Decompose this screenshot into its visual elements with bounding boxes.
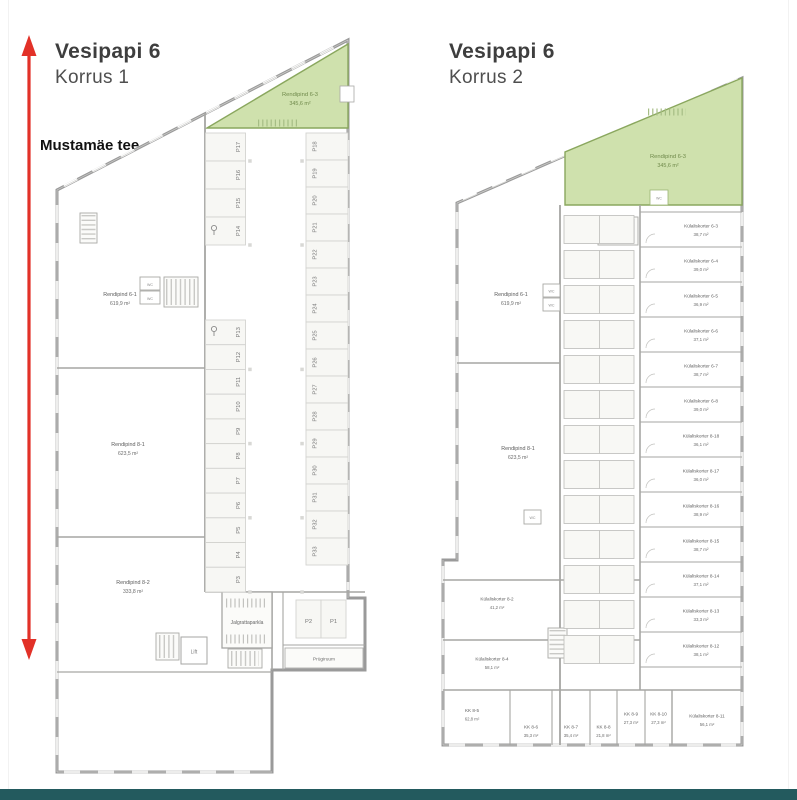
bathroom-pod (564, 566, 634, 594)
unit-size: 27,3 m² (624, 720, 639, 725)
unit-size: 58,1 m² (485, 665, 500, 670)
unit-size: 38,7 m² (694, 547, 709, 552)
parking-stall-label: P15 (236, 198, 242, 208)
structural-column (248, 159, 252, 163)
unit-name: Külaliskorter 6-3 (684, 224, 718, 229)
unit-name: Külaliskorter 8-2 (480, 597, 514, 602)
parking-stall-label: P10 (236, 401, 242, 411)
highlight-unit-size: 345,6 m² (657, 163, 678, 169)
area-size: 623,5 m² (508, 455, 528, 461)
parking-stall-label: P6 (236, 502, 242, 509)
unit-size: 36,0 m² (694, 477, 709, 482)
structural-column (300, 159, 304, 163)
unit-size: 39,0 m² (694, 407, 709, 412)
bathroom-pod (564, 356, 634, 384)
parking-stall-label: P32 (313, 519, 319, 529)
area-name: Rendipind 6-1 (494, 292, 528, 298)
arrow-down-head (22, 639, 37, 660)
unit-size: 38,9 m² (694, 512, 709, 517)
floor-plans-canvas: Rendipind 6-3 345,6 m² WC WC Jalgrattapa… (0, 0, 797, 789)
unit-name: Külaliskorter 8-4 (475, 657, 509, 662)
parking-stall-label: P28 (313, 411, 319, 421)
unit-size: 27,3 m² (651, 720, 666, 725)
unit-name: Külaliskorter 6-6 (684, 329, 718, 334)
structural-column (300, 243, 304, 247)
unit-size: 38,7 m² (694, 372, 709, 377)
unit-name: Külaliskorter 8-16 (683, 504, 720, 509)
unit-size: 38,7 m² (694, 232, 709, 237)
bathroom-pod (564, 286, 634, 314)
bathroom-pod (564, 461, 634, 489)
floor-plan-korrus-1: Rendipind 6-3 345,6 m² WC WC Jalgrattapa… (57, 40, 365, 772)
wc-label: WC (549, 304, 555, 308)
highlight-unit-size: 345,6 m² (289, 101, 310, 107)
wc-label: WC (147, 283, 153, 287)
unit-name: KK 8-5 (465, 708, 479, 713)
floor-plan-korrus-2: WC Rendipind 6-3 345,6 m² WC WC WC Rendi… (443, 78, 742, 745)
footer-bar (0, 789, 797, 800)
unit-name: Külaliskorter 8-13 (683, 609, 720, 614)
parking-stall-label: P29 (313, 438, 319, 448)
parking-stall-label: P8 (236, 452, 242, 459)
structural-column (300, 516, 304, 520)
parking-stall-label: P19 (313, 168, 319, 178)
unit-name: Külaliskorter 6-5 (684, 294, 718, 299)
wc-label: WC (549, 290, 555, 294)
arrow-up-head (22, 35, 37, 56)
unit-name: KK 8-6 (524, 725, 538, 730)
unit-size: 41,2 m² (490, 605, 505, 610)
area-name: Rendipind 6-1 (103, 292, 137, 298)
parking-stall-label: P13 (236, 327, 242, 337)
parking-stall-label: P14 (236, 225, 242, 236)
parking-stall-label: P4 (236, 551, 242, 559)
unit-size: 36,9 m² (694, 302, 709, 307)
unit-size: 35,4 m² (564, 733, 579, 738)
area-name: Rendipind 8-1 (501, 446, 535, 452)
highlight-unit-rendipind-6-3[interactable] (207, 44, 348, 128)
unit-name: Külaliskorter 6-8 (684, 399, 718, 404)
parking-stall-label: P23 (313, 276, 319, 286)
area-name: Rendipind 8-1 (111, 442, 145, 448)
parking-stall-label: P30 (313, 465, 319, 475)
structural-column (248, 516, 252, 520)
bathroom-pod (564, 216, 634, 244)
parking-stall-label: P11 (236, 377, 242, 387)
unit-name: KK 8-10 (650, 712, 667, 717)
structural-column (300, 442, 304, 446)
lift-label: Lift (191, 650, 198, 656)
wc-label: WC (147, 297, 153, 301)
parking-stall-label: P21 (313, 222, 319, 232)
unit-name: Külaliskorter 8-15 (683, 539, 720, 544)
structural-column (248, 442, 252, 446)
parking-stall-label: P2 (305, 619, 312, 625)
wc-label: WC (530, 516, 536, 520)
street-direction-arrow (22, 35, 37, 660)
parking-stall-label: P12 (236, 352, 242, 362)
bike-room-label: Jalgrattaparkla (231, 620, 264, 626)
area-size: 333,8 m² (123, 589, 143, 595)
unit-size: 36,1 m² (694, 442, 709, 447)
unit-name: Külaliskorter 8-18 (683, 434, 720, 439)
bathroom-pod (564, 636, 634, 664)
structural-column (300, 590, 304, 594)
structural-column (300, 368, 304, 372)
unit-size: 37,1 m² (694, 582, 709, 587)
area-name: Rendipind 8-2 (116, 580, 150, 586)
structural-column (248, 368, 252, 372)
parking-stall-label: P24 (313, 303, 319, 314)
highlight-unit-name: Rendipind 6-3 (282, 92, 318, 98)
parking-stall-label: P33 (313, 546, 319, 556)
unit-name: Külaliskorter 6-7 (684, 364, 718, 369)
parking-stall-label: P16 (236, 170, 242, 180)
highlight-unit-rendipind-6-3[interactable] (565, 78, 742, 205)
bathroom-pod (564, 391, 634, 419)
parking-stall-label: P18 (313, 141, 319, 151)
parking-stall-label: P9 (236, 428, 242, 435)
unit-name: Külaliskorter 8-14 (683, 574, 720, 579)
unit-size: 39,0 m² (694, 267, 709, 272)
unit-size: 38,1 m² (694, 652, 709, 657)
unit-name: Külaliskorter 8-12 (683, 644, 720, 649)
unit-name: Külaliskorter 8-17 (683, 469, 720, 474)
unit-name: Külaliskorter 8-11 (689, 714, 725, 719)
parking-stall-label: P27 (313, 384, 319, 394)
unit-size: 33,3 m² (694, 617, 709, 622)
bathroom-pod (564, 426, 634, 454)
structural-column (248, 243, 252, 247)
shaft-box (340, 86, 354, 102)
unit-name: KK 8-9 (624, 712, 638, 717)
unit-name: KK 8-8 (596, 725, 610, 730)
parking-stall-label: P7 (236, 477, 242, 484)
parking-stall-label: P20 (313, 195, 319, 205)
bathroom-pod (564, 531, 634, 559)
unit-size: 37,1 m² (694, 337, 709, 342)
unit-size: 35,3 m² (524, 733, 539, 738)
waste-room-label: Prügiruum (313, 657, 335, 663)
unit-size: 56,1 m² (700, 722, 715, 727)
unit-size: 62,8 m² (465, 717, 480, 722)
unit-size: 21,8 m² (596, 733, 611, 738)
parking-stall-label: P5 (236, 527, 242, 534)
unit-name: KK 8-7 (564, 725, 578, 730)
bathroom-pod (564, 496, 634, 524)
parking-stall-label: P22 (313, 249, 319, 259)
area-size: 619,9 m² (501, 301, 521, 307)
area-size: 623,5 m² (118, 451, 138, 457)
bathroom-pod (564, 251, 634, 279)
highlight-unit-name: Rendipind 6-3 (650, 154, 686, 160)
parking-stall-label: P1 (330, 619, 337, 625)
area-size: 619,9 m² (110, 301, 130, 307)
parking-stall-label: P17 (236, 142, 242, 152)
parking-stall-label: P31 (313, 492, 319, 502)
wc-label: WC (656, 197, 662, 201)
parking-stall-label: P25 (313, 330, 319, 340)
bathroom-pod (564, 321, 634, 349)
unit-name: Külaliskorter 6-4 (684, 259, 718, 264)
structural-column (248, 590, 252, 594)
parking-stall-label: P26 (313, 357, 319, 367)
bathroom-pod (564, 601, 634, 629)
parking-stall-label: P3 (236, 576, 242, 583)
